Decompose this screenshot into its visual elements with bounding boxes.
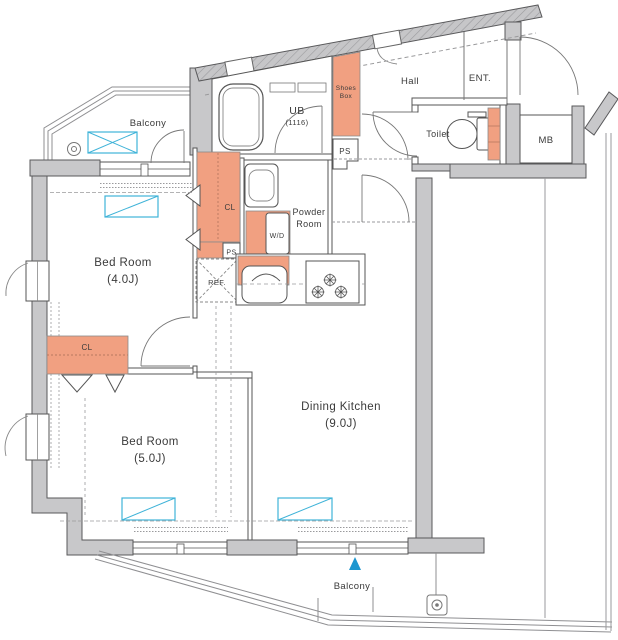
drain-icon: [68, 143, 81, 156]
folding-door-icon: [62, 375, 92, 392]
powder-room: W/D Powder Room: [245, 164, 325, 256]
washer-dryer: W/D: [246, 211, 290, 256]
kitchen-sink-icon: [242, 266, 287, 303]
meter-box: MB: [520, 115, 572, 163]
drain-icon: [427, 595, 447, 615]
shoes-box-label-1: Shoes: [336, 85, 357, 92]
balcony-bottom-label: Balcony: [334, 581, 371, 592]
powder-room-label-2: Room: [296, 219, 322, 229]
bath-counter-icon: [298, 83, 326, 92]
bed-room-5-size: (5.0J): [134, 453, 166, 465]
entrance-door-arc: [520, 37, 578, 95]
dining-kitchen-size: (9.0J): [325, 418, 357, 430]
balcony-door-arc: [151, 130, 184, 163]
dk-hall-door-arc: [362, 175, 409, 222]
balcony-top: Balcony: [44, 87, 190, 162]
bed-room-5-label: Bed Room: [121, 436, 179, 448]
bed-room-4-label: Bed Room: [94, 257, 152, 269]
toilet-label: Toilet: [426, 129, 450, 139]
cl-corridor-label: CL: [224, 203, 235, 212]
ps-hall-label: PS: [339, 147, 350, 156]
folding-door-icon: [106, 375, 124, 392]
ps-corridor-label: PS: [226, 250, 236, 257]
powder-room-label-1: Powder: [293, 207, 326, 217]
ac-mark-icon: [278, 498, 332, 520]
ac-mark-icon: [122, 498, 175, 520]
ref-label: REF.: [208, 278, 226, 287]
stove-icon: [306, 261, 359, 303]
mb-label: MB: [538, 135, 553, 146]
bed-room-5: Bed Room (5.0J): [5, 398, 179, 520]
sliding-window: [133, 542, 227, 554]
dining-kitchen-label: Dining Kitchen: [301, 401, 381, 413]
ub-size-label: (1116): [286, 118, 309, 127]
ub-label: UB: [289, 105, 304, 117]
ac-mark-icon: [105, 196, 158, 217]
kitchen-counter: [236, 254, 365, 305]
bathtub-icon: [219, 84, 263, 150]
toilet-icon: [447, 112, 491, 150]
floor-plan: Balcony UB (1: [0, 0, 618, 640]
ent-label: ENT.: [469, 73, 491, 84]
shoes-box-label-2: Box: [340, 93, 353, 100]
wd-label: W/D: [270, 233, 285, 240]
casement-window: [5, 414, 49, 460]
shoes-box: Shoes Box: [333, 52, 360, 136]
balcony-access-marker-icon: [349, 557, 361, 570]
bed4-door-arc: [141, 317, 190, 366]
balcony-bottom: Balcony: [95, 133, 612, 632]
cl-bed5-label: CL: [81, 343, 92, 352]
hall-label: Hall: [401, 76, 419, 87]
boundary-stub-wall: [585, 92, 618, 135]
washbasin-icon: [245, 164, 278, 207]
toilet-cabinet: [488, 108, 500, 160]
bath-shelf-icon: [270, 83, 295, 92]
toilet-room: Toilet: [373, 108, 500, 160]
pipe-space-hall: PS: [333, 139, 358, 169]
balcony-top-label: Balcony: [130, 118, 167, 129]
sliding-window: [297, 542, 408, 554]
casement-window: [6, 261, 49, 301]
toilet-door-arc: [373, 112, 417, 156]
ac-unit-outdoor-icon: [88, 132, 137, 153]
dining-kitchen: Dining Kitchen (9.0J): [216, 306, 381, 520]
bed-room-4-size: (4.0J): [107, 274, 139, 286]
